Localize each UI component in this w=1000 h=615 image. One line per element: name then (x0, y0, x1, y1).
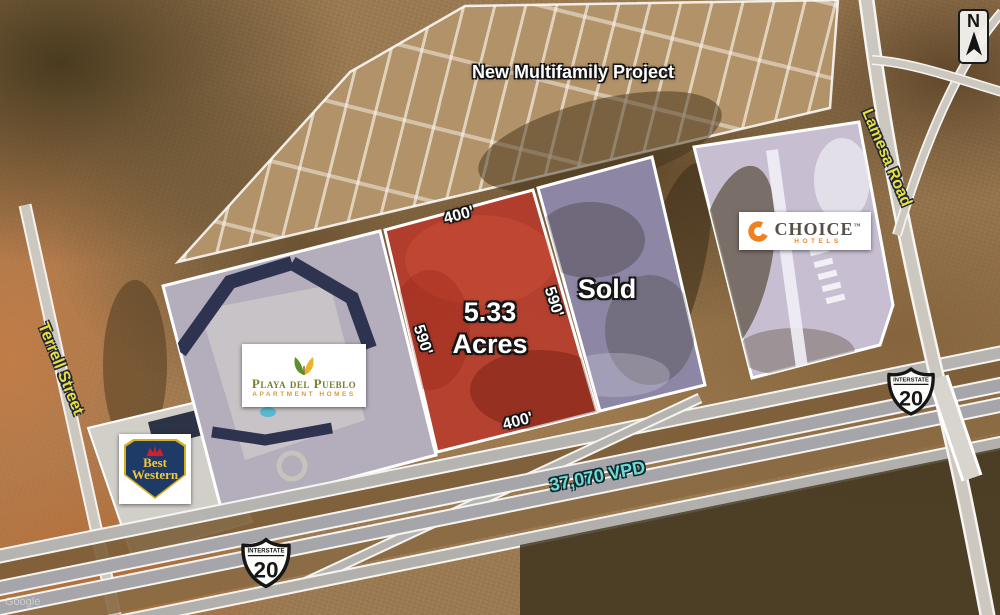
best-western-word-2: Western (132, 469, 178, 481)
choice-wordmark-block: CHOICE™ HOTELS (774, 218, 861, 245)
shield-number: 20 (253, 558, 278, 583)
best-western-shield-border: Best Western (124, 439, 186, 499)
playa-name: Playa del Pueblo (252, 377, 356, 390)
north-letter: N (967, 12, 980, 31)
north-indicator: N (958, 9, 989, 64)
interstate-20-shield-east: INTERSTATE 20 (886, 363, 936, 420)
north-arrow-icon (965, 31, 983, 57)
shield-number: 20 (899, 386, 923, 411)
best-western-sign: Best Western (119, 434, 191, 504)
choice-wordmark: CHOICE™ (774, 218, 861, 238)
interstate-20-shield-west: INTERSTATE 20 (240, 533, 292, 593)
choice-trademark: ™ (854, 222, 862, 230)
choice-parcel (675, 122, 893, 378)
sold-label: Sold (547, 274, 667, 305)
best-western-shield: Best Western (126, 441, 184, 497)
playa-del-pueblo-sign: Playa del Pueblo APARTMENT HOMES (242, 344, 366, 407)
project-label: New Multifamily Project (447, 62, 699, 83)
shield-header: INTERSTATE (247, 549, 284, 555)
choice-name: CHOICE (774, 219, 853, 239)
shield-header: INTERSTATE (893, 378, 929, 384)
palm-tree-icon (291, 353, 317, 377)
choice-hotels-sign: CHOICE™ HOTELS (739, 212, 871, 250)
playa-subtitle: APARTMENT HOMES (252, 391, 355, 398)
aerial-site-map: New Multifamily Project 5.33 Acres Sold … (0, 0, 1000, 615)
choice-c-icon (748, 221, 769, 242)
choice-subtitle: HOTELS (774, 238, 861, 245)
imagery-watermark: Google (5, 596, 40, 608)
